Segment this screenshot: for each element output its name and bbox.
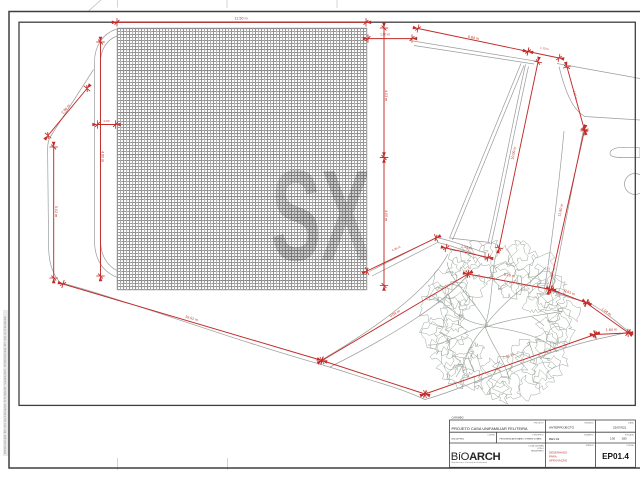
svg-text:LOTE 4: LOTE 4	[537, 448, 544, 450]
svg-text:4.03 m: 4.03 m	[384, 90, 388, 101]
svg-text:CARIMBO: CARIMBO	[452, 415, 464, 419]
svg-text:FOLHA: FOLHA	[627, 444, 635, 447]
svg-text:PROJETO CASA UNIFAMILIAR FELIT: PROJETO CASA UNIFAMILIAR FELITEIRA	[452, 426, 528, 431]
svg-text:ESCALA: ESCALA	[625, 433, 634, 436]
svg-text:CONTA: CONTA	[487, 433, 495, 436]
svg-text:EP01.4: EP01.4	[602, 452, 629, 461]
svg-text:ESTADIO: ESTADIO	[585, 421, 594, 424]
svg-text:5.02 m: 5.02 m	[54, 206, 58, 217]
svg-text:11.50 m: 11.50 m	[234, 17, 247, 21]
svg-text:STATUS: STATUS	[586, 444, 595, 447]
svg-text:1.00 m: 1.00 m	[380, 33, 390, 37]
svg-text:TANGERINHO: TANGERINHO	[531, 450, 544, 453]
svg-text:Arquitectura e Construção Sust: Arquitectura e Construção Sustentável	[452, 461, 488, 464]
svg-text:B10.03.PROJ: B10.03.PROJ	[452, 439, 465, 441]
svg-text:APROVAÇÃO: APROVAÇÃO	[549, 458, 568, 463]
svg-text:1:50: 1:50	[610, 437, 616, 441]
svg-text:DATA: DATA	[628, 421, 634, 424]
svg-text:4.60 m: 4.60 m	[101, 151, 105, 162]
svg-text:PRODUCED BY AN AUTODESK STUDEN: PRODUCED BY AN AUTODESK STUDENT VERSION.…	[3, 316, 7, 454]
svg-text:0.60: 0.60	[104, 119, 110, 123]
svg-text:ANTEPROJECTO: ANTEPROJECTO	[549, 426, 575, 430]
svg-text:1.64 m: 1.64 m	[606, 328, 617, 333]
svg-text:4.00 m: 4.00 m	[384, 210, 388, 221]
svg-text:PROJETO: PROJETO	[534, 422, 544, 424]
svg-text:SX: SX	[271, 144, 371, 288]
svg-text:LOCAL DA OBRA: LOCAL DA OBRA	[528, 444, 544, 447]
svg-text:PROVIDENCIA ROSARIO TORRES GOM: PROVIDENCIA ROSARIO TORRES GOMES	[500, 438, 542, 441]
svg-text:O PROPRIO: O PROPRIO	[532, 434, 544, 436]
svg-text:22/07/021: 22/07/021	[613, 426, 627, 430]
svg-text:NUMERO: NUMERO	[584, 434, 594, 436]
svg-text:REV.01: REV.01	[549, 437, 560, 441]
svg-text:1/50: 1/50	[622, 437, 628, 441]
